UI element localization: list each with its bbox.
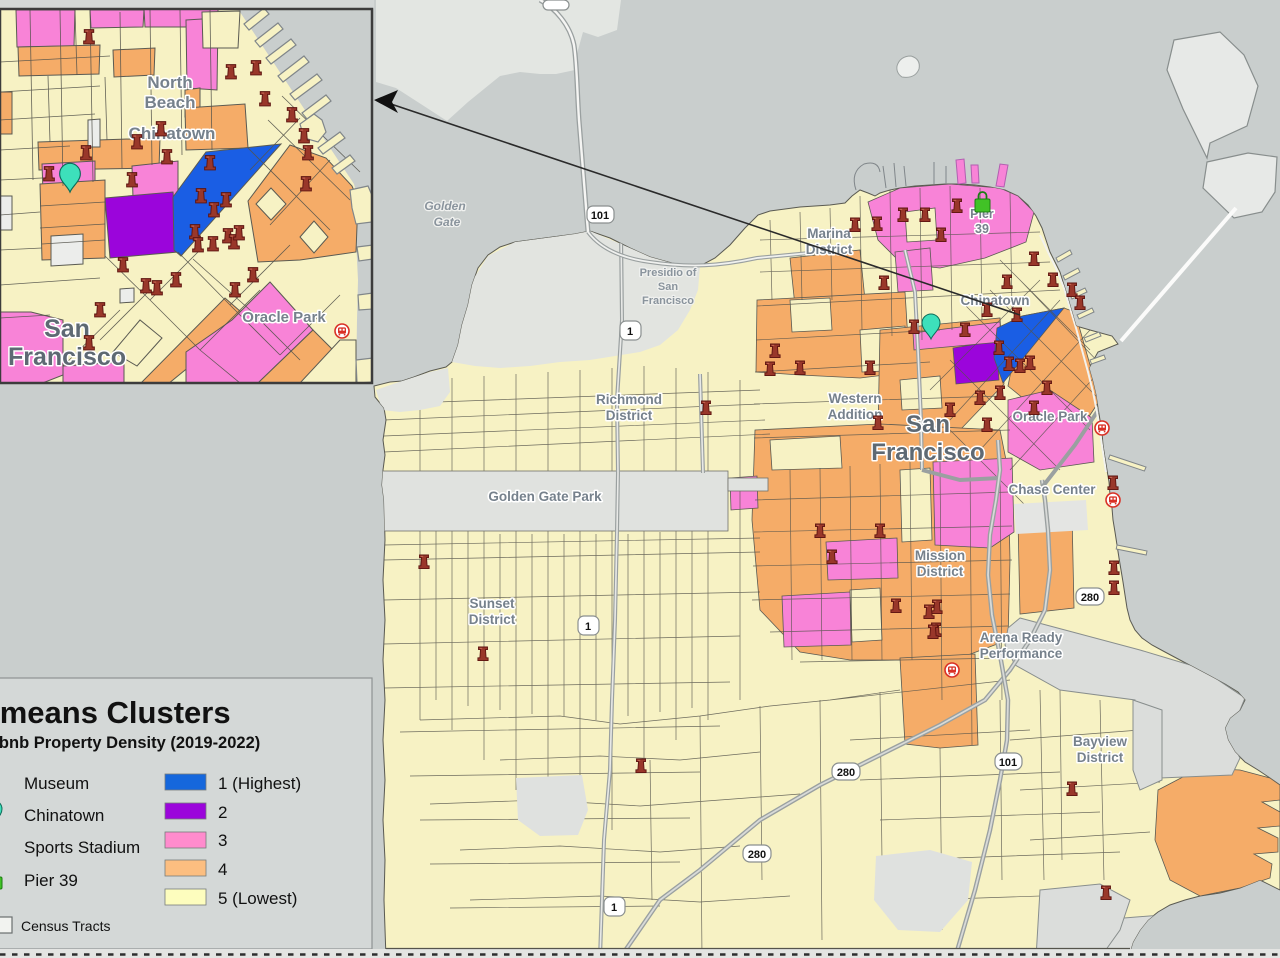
svg-text:Golden: Golden [424,199,465,213]
svg-text:1: 1 [585,621,591,633]
svg-text:District: District [917,564,964,579]
svg-text:Chinatown: Chinatown [129,124,216,143]
svg-text:4: 4 [218,860,227,879]
svg-text:Chinatown: Chinatown [961,293,1030,308]
svg-text:101: 101 [591,210,609,222]
svg-text:Museum: Museum [24,774,89,793]
svg-text:San: San [906,411,950,438]
svg-text:3: 3 [218,831,227,850]
svg-text:Presidio of: Presidio of [640,267,697,279]
svg-text:San: San [44,315,90,343]
svg-text:Richmond: Richmond [596,392,662,407]
svg-text:280: 280 [1081,592,1099,604]
svg-text:Addition: Addition [828,407,883,422]
svg-text:Francisco: Francisco [871,439,984,466]
svg-text:District: District [606,408,653,423]
svg-text:Arena Ready: Arena Ready [980,630,1063,645]
svg-text:Marina: Marina [807,226,851,241]
svg-text:Pier 39: Pier 39 [24,871,78,890]
svg-text:Golden Gate Park: Golden Gate Park [488,489,602,504]
svg-text:Performance: Performance [980,646,1063,661]
svg-text:2: 2 [218,803,227,822]
svg-text:101: 101 [999,757,1017,769]
svg-text:Chase Center: Chase Center [1008,482,1096,497]
svg-text:District: District [806,242,853,257]
svg-text:Oracle Park: Oracle Park [1012,409,1088,424]
svg-text:Sunset: Sunset [469,596,515,611]
svg-text:Mission: Mission [915,548,965,563]
svg-text:5 (Lowest): 5 (Lowest) [218,889,297,908]
svg-text:Sports Stadium: Sports Stadium [24,838,140,857]
svg-text:Airbnb Property Density (2019-: Airbnb Property Density (2019-2022) [0,734,260,752]
svg-text:Bayview: Bayview [1073,734,1128,749]
svg-text:Beach: Beach [144,93,195,112]
svg-text:1 (Highest): 1 (Highest) [218,774,301,793]
svg-text:1: 1 [611,902,617,914]
svg-text:Gate: Gate [434,215,461,229]
svg-text:280: 280 [837,767,855,779]
svg-text:Western: Western [828,391,881,406]
svg-text:District: District [469,612,516,627]
svg-text:North: North [147,73,192,92]
svg-text:280: 280 [748,849,766,861]
svg-text:San: San [658,281,678,293]
svg-text:K-means Clusters: K-means Clusters [0,695,231,730]
svg-text:Oracle Park: Oracle Park [242,309,326,326]
svg-text:1: 1 [627,326,633,338]
svg-text:39: 39 [975,222,989,236]
svg-text:Francisco: Francisco [642,295,694,307]
svg-text:Francisco: Francisco [8,343,126,371]
svg-text:Census Tracts: Census Tracts [21,918,110,934]
svg-text:District: District [1077,750,1124,765]
svg-text:Chinatown: Chinatown [24,806,104,825]
